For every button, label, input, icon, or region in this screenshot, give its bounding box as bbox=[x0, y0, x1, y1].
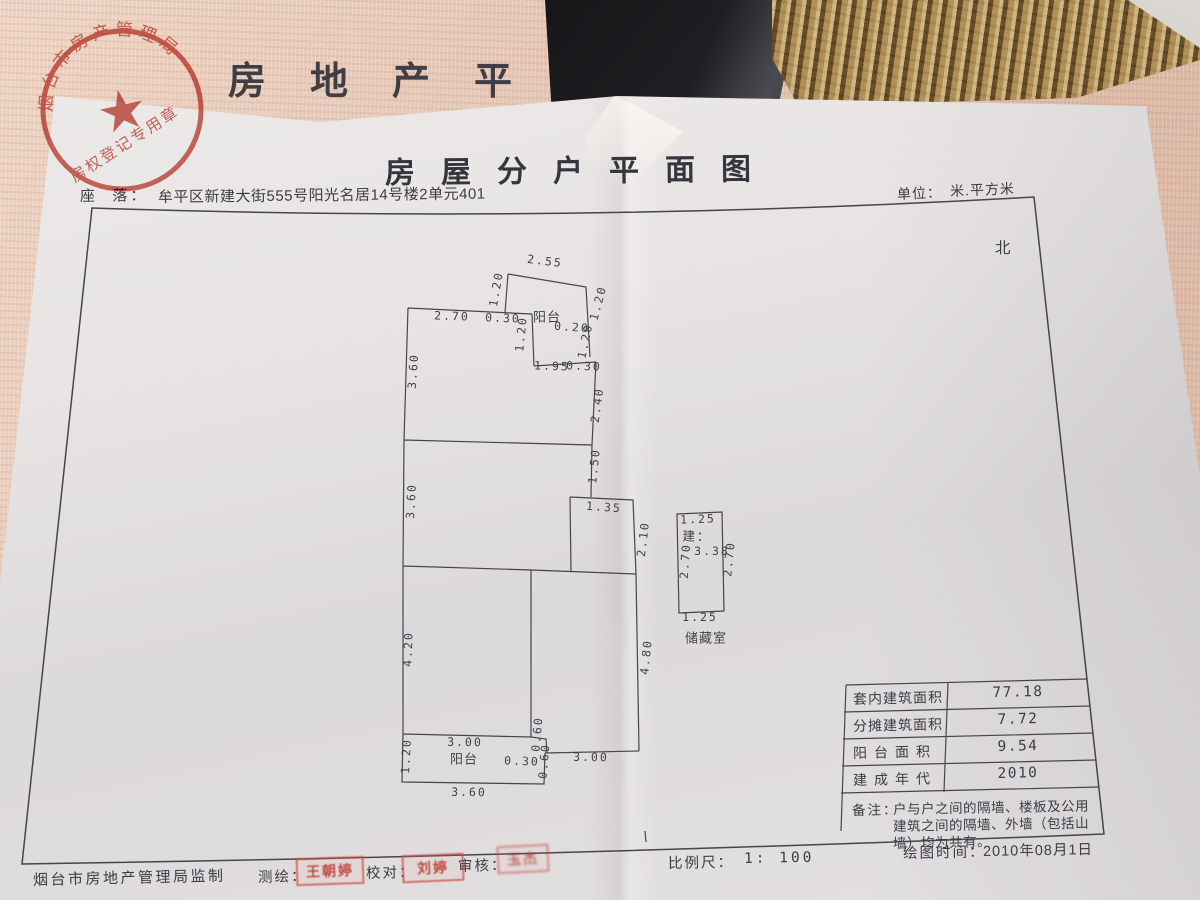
storage-build-label: 建： bbox=[682, 526, 711, 545]
dim-label: 1.95 bbox=[534, 358, 570, 373]
table-row-label: 建成年代 bbox=[853, 768, 937, 790]
scale-value: 1: 100 bbox=[744, 850, 815, 867]
dim-label: 2.70 bbox=[434, 308, 470, 323]
scale-label: 比例尺： bbox=[668, 851, 734, 873]
issuer-label: 烟台市房地产管理局监制 bbox=[33, 865, 226, 890]
dim-label: 3.60 bbox=[405, 353, 421, 390]
checker-stamp: 刘婷 bbox=[401, 853, 464, 884]
dim-label: 3.60 bbox=[451, 785, 487, 800]
table-row-label: 阳台面积 bbox=[853, 741, 937, 763]
table-row-label: 分摊建筑面积 bbox=[853, 714, 943, 736]
dim-label: 1.25 bbox=[682, 610, 718, 624]
table-row-value: 7.72 bbox=[953, 710, 1083, 729]
room-label-balcony-bottom: 阳台 bbox=[450, 749, 478, 768]
floor-plan-walls bbox=[402, 274, 724, 784]
dim-label: 3.00 bbox=[447, 735, 483, 750]
dim-label: 1.35 bbox=[586, 499, 623, 515]
dim-label: 0.30 bbox=[566, 358, 602, 373]
surveyor-stamp: 王朝婷 bbox=[296, 856, 365, 886]
dim-label: 1.25 bbox=[680, 511, 716, 526]
table-row-value: 9.54 bbox=[953, 737, 1083, 756]
dim-label: 3.00 bbox=[573, 750, 609, 765]
official-seal: 烟台市房产管理局 ★ 房权登记专用章 bbox=[34, 18, 210, 194]
drawn-date-value: 2010年08月1日 bbox=[983, 838, 1093, 861]
auditor-stamp: 玉杰 bbox=[496, 844, 549, 875]
dim-label: 4.20 bbox=[400, 631, 415, 667]
dim-label: 0.30 bbox=[504, 753, 540, 768]
dim-label: 2.70 bbox=[677, 543, 693, 580]
photo-of-floor-plan-document: 房地产平面图 房屋分户平面图 座 落： 牟平区新建大街555号阳光名居14号楼2… bbox=[0, 0, 1200, 900]
unit-value: 米.平方米 bbox=[950, 178, 1016, 201]
north-indicator: 北 bbox=[995, 236, 1013, 258]
table-row-value: 2010 bbox=[953, 764, 1083, 783]
dim-label: 3.60 bbox=[403, 483, 419, 519]
table-row-value: 77.18 bbox=[953, 683, 1083, 702]
remark-label: 备注： bbox=[852, 798, 899, 819]
dim-label: 1.20 bbox=[398, 738, 414, 774]
unit-label: 单位： bbox=[897, 182, 943, 204]
table-row-label: 套内建筑面积 bbox=[853, 687, 943, 709]
room-label-storage: 储藏室 bbox=[685, 628, 727, 647]
drawn-date-label: 绘图时间： bbox=[903, 841, 986, 863]
